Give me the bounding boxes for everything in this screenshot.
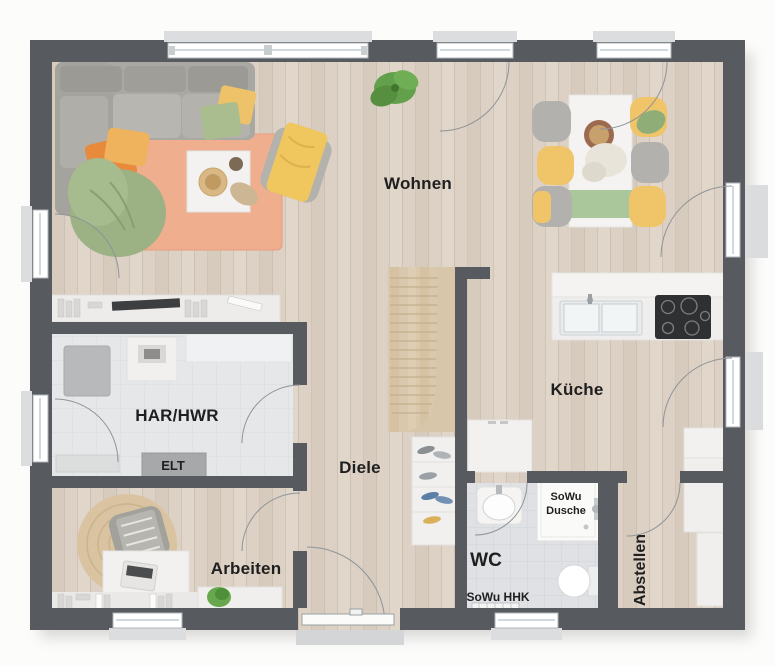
door-handle <box>350 609 362 615</box>
wall-left <box>30 40 52 630</box>
washbasin <box>483 494 515 520</box>
washing-machine <box>64 346 110 396</box>
wall-right <box>723 40 745 630</box>
vase <box>229 157 243 171</box>
shoe-rack <box>412 437 457 545</box>
label-sowu: SoWu <box>551 491 582 503</box>
wall-wc-top <box>527 471 627 483</box>
label-arbeiten: Arbeiten <box>211 559 282 578</box>
door-leaf <box>302 614 394 625</box>
label-diele: Diele <box>339 458 381 477</box>
pillow-amber <box>104 127 151 167</box>
label-wohnen: Wohnen <box>384 174 452 193</box>
floor-plan-svg: Wohnen Küche HAR/HWR ELT Diele Arbeiten … <box>0 0 775 666</box>
cooktop <box>655 295 711 339</box>
pillow-green <box>200 102 242 141</box>
kitchen-cabinet <box>468 420 532 472</box>
kitchen-upper-cabinets <box>552 273 725 297</box>
wall-wc-abstellen <box>598 483 618 608</box>
laptop <box>120 561 157 591</box>
tv-sideboard <box>50 295 280 322</box>
utility-counter <box>186 334 292 362</box>
low-shelf <box>56 455 119 472</box>
label-dusche: Dusche <box>546 505 586 517</box>
label-sowu-hhk: SoWu HHK <box>466 590 529 604</box>
wall-stairs <box>455 267 467 608</box>
label-abstellen: Abstellen <box>632 534 649 606</box>
label-elt: ELT <box>161 458 185 473</box>
floor-plan-image: Wohnen Küche HAR/HWR ELT Diele Arbeiten … <box>0 0 775 666</box>
dining-furniture <box>532 95 669 227</box>
label-har-hwr: HAR/HWR <box>135 406 219 425</box>
toilet <box>558 565 600 597</box>
table-runner-green <box>569 190 632 218</box>
label-kueche: Küche <box>551 380 604 399</box>
label-wc: WC <box>470 550 502 571</box>
wall-living-har <box>52 322 307 334</box>
wall-har-arbeiten <box>52 476 307 488</box>
